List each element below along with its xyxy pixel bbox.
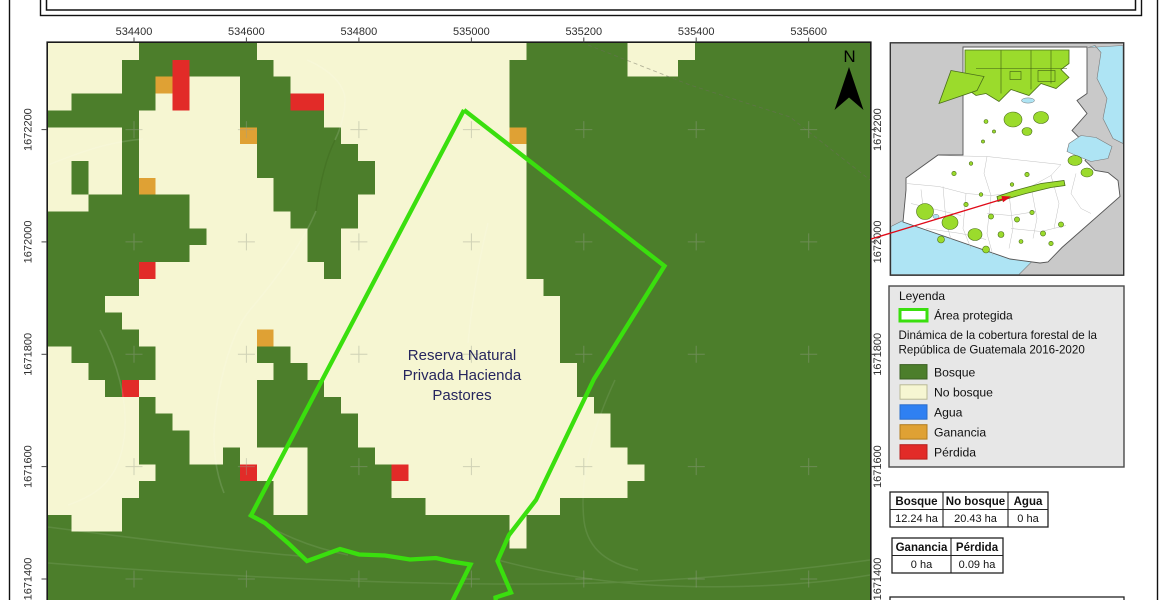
svg-text:Pastores: Pastores <box>432 387 491 404</box>
svg-text:Dinámica de la cobertura fores: Dinámica de la cobertura forestal de la <box>899 329 1098 342</box>
svg-text:Agua: Agua <box>934 406 963 420</box>
svg-text:Pérdida: Pérdida <box>956 542 999 554</box>
svg-text:1672000: 1672000 <box>23 220 35 263</box>
svg-text:República de Guatemala 2016-20: República de Guatemala 2016-2020 <box>899 344 1085 357</box>
svg-text:12.24 ha: 12.24 ha <box>895 513 939 525</box>
svg-text:535600: 535600 <box>790 26 827 38</box>
svg-text:534800: 534800 <box>341 26 378 38</box>
svg-text:0 ha: 0 ha <box>911 559 933 571</box>
svg-text:N: N <box>843 47 855 66</box>
svg-text:Pérdida: Pérdida <box>934 446 976 460</box>
svg-text:535200: 535200 <box>565 26 602 38</box>
svg-text:Bosque: Bosque <box>934 366 976 380</box>
svg-text:535400: 535400 <box>678 26 715 38</box>
svg-text:Bosque: Bosque <box>895 496 937 508</box>
svg-text:1671600: 1671600 <box>23 445 35 488</box>
svg-text:534400: 534400 <box>116 26 153 38</box>
svg-text:534600: 534600 <box>228 26 265 38</box>
svg-text:535000: 535000 <box>453 26 490 38</box>
svg-text:Ganancia: Ganancia <box>934 426 986 440</box>
svg-text:No bosque: No bosque <box>934 386 993 400</box>
svg-text:Área protegida: Área protegida <box>934 308 1013 323</box>
svg-text:20.43 ha: 20.43 ha <box>954 513 998 525</box>
svg-text:1671400: 1671400 <box>23 558 35 600</box>
svg-text:Leyenda: Leyenda <box>899 289 945 303</box>
svg-text:0 ha: 0 ha <box>1017 513 1039 525</box>
svg-text:1672200: 1672200 <box>23 108 35 151</box>
svg-text:1671800: 1671800 <box>23 333 35 376</box>
svg-text:No bosque: No bosque <box>946 496 1005 508</box>
svg-text:Agua: Agua <box>1014 496 1043 508</box>
svg-text:Ganancia: Ganancia <box>896 542 948 554</box>
svg-text:0.09 ha: 0.09 ha <box>959 559 997 571</box>
svg-text:Privada Hacienda: Privada Hacienda <box>403 367 522 384</box>
svg-text:Reserva Natural: Reserva Natural <box>408 347 516 364</box>
